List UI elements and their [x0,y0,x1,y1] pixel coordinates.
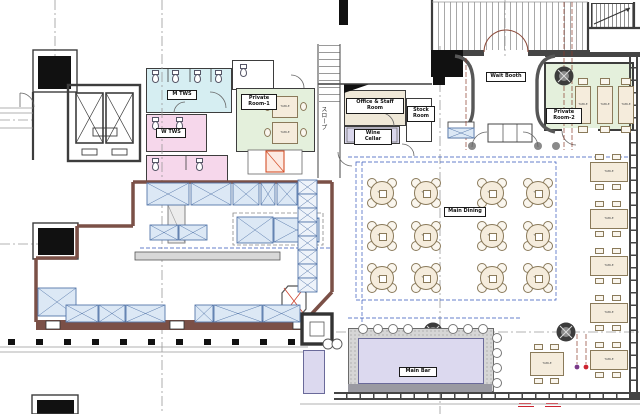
chair [595,278,604,284]
chair [612,295,621,301]
bar-stool [358,324,368,334]
bar-stool [492,378,502,388]
private2-table: TABLE [597,86,613,124]
label-private-room-1: Private Room-1 [241,94,277,110]
chair [595,201,604,207]
revision-mark [545,406,561,407]
label-wait-booth: Wait Booth [486,72,526,82]
private1-table: TABLE [272,122,298,144]
chair [595,295,604,301]
label-main-dining: Main Dining [444,207,486,217]
bar-stool [388,324,398,334]
table-center [423,275,431,283]
toilet-bowl [215,74,222,83]
chair [612,325,621,331]
chair [595,154,604,160]
chair [612,278,621,284]
window-mullion [204,339,211,345]
toilet-bowl [196,162,203,171]
chair [612,372,621,378]
table-center [379,233,387,241]
table-center [535,233,543,241]
chair [612,154,621,160]
table-center [423,233,431,241]
chair [600,126,610,133]
table-center [489,233,497,241]
chair [595,248,604,254]
bar-stool [448,324,458,334]
chair [621,78,631,85]
window-mullion [260,339,267,345]
dining-rect-table: TABLE [590,350,628,370]
chair [534,344,543,350]
chair [578,78,588,85]
dining-rect-table: TABLE [590,209,628,229]
chair [595,372,604,378]
label-stock-room: Stock Room [407,106,435,122]
toilet-bowl [152,74,159,83]
revision-mark [518,406,534,407]
chair [550,378,559,384]
chair [300,128,307,137]
window-mullion [92,339,99,345]
chair [612,184,621,190]
toilet-bowl [172,74,179,83]
window-mullion [288,339,295,345]
chair [300,102,307,111]
label-ramp: スロープ [319,106,326,130]
chair [600,78,610,85]
window-mullion [8,339,15,345]
window-mullion [176,339,183,345]
window-mullion [64,339,71,345]
dining-rect-table: TABLE [590,303,628,323]
toilet-bowl [152,162,159,171]
chair [578,126,588,133]
label-private-room-2: Private Room-2 [546,108,582,124]
floor-plan: TABLETABLETABLETABLETABLETABLETABLETABLE… [0,0,640,414]
revision-mark [519,403,531,404]
window-mullion [232,339,239,345]
chair [595,184,604,190]
chair [621,126,631,133]
chair [550,344,559,350]
table-center [379,275,387,283]
vestibule-walls [455,56,555,132]
table-center [535,190,543,198]
bar-stool [403,324,413,334]
chair [264,128,271,137]
label-office-staff: Office & Staff Room [346,98,404,114]
toilet-bowl [194,74,201,83]
table-center [379,190,387,198]
label-m-tws: M TWS [167,90,197,100]
bar-floor [358,338,484,384]
bar-stool [492,333,502,343]
bar-stool [492,348,502,358]
chair [595,231,604,237]
revision-mark [546,403,558,404]
chair [595,342,604,348]
chair [612,231,621,237]
bar-stool [373,324,383,334]
bar-stool [463,324,473,334]
bar-stool [492,363,502,373]
table-center [489,275,497,283]
bar-stool [478,324,488,334]
private2-table: TABLE [618,86,634,124]
label-wine-cellar: Wine Cellar [354,129,392,145]
chair [612,201,621,207]
entrance-doors [484,30,528,52]
dining-rect-table: TABLE [530,352,564,376]
toilet-bowl [240,68,247,77]
label-w-tws: W TWS [156,128,186,138]
chair [534,378,543,384]
window-mullion [148,339,155,345]
table-center [535,275,543,283]
window-band-bottom [334,392,640,400]
label-main-bar: Main Bar [399,367,437,377]
window-mullion [120,339,127,345]
table-center [489,190,497,198]
shaft-orange [248,150,302,174]
dining-rect-table: TABLE [590,256,628,276]
bar-service-back [303,350,325,394]
chair [595,325,604,331]
chair [612,248,621,254]
chair [612,342,621,348]
bar-lower-wall [348,384,492,392]
window-mullion [36,339,43,345]
dining-rect-table: TABLE [590,162,628,182]
table-center [423,190,431,198]
